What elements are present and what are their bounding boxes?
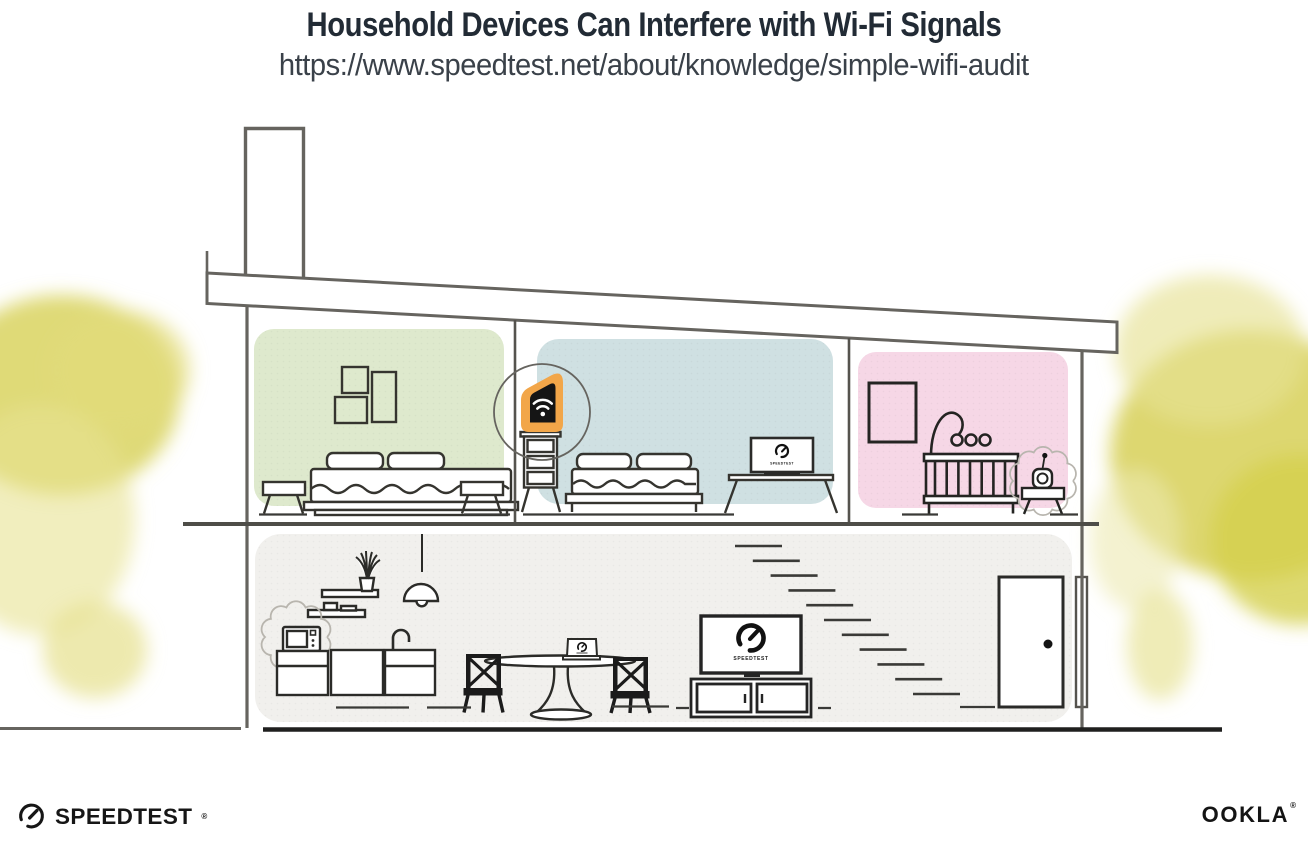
speedtest-tv: SPEEDTEST <box>701 616 801 677</box>
microwave <box>283 627 320 651</box>
ookla-logo: OOKLA® <box>1202 802 1296 828</box>
laptop <box>563 639 600 660</box>
ookla-wordmark: OOKLA <box>1202 802 1289 828</box>
door-knob <box>1044 640 1053 649</box>
speedtest-reg-mark: ® <box>201 812 207 821</box>
monitor-screen-label: SPEEDTEST <box>770 462 794 466</box>
tree-right <box>1090 275 1308 700</box>
tv-screen-label: SPEEDTEST <box>733 656 768 662</box>
speedtest-gauge-icon <box>16 801 47 832</box>
media-console <box>691 679 811 717</box>
speedtest-wordmark: SPEEDTEST <box>55 804 192 830</box>
tree-left <box>0 295 190 698</box>
front-door <box>999 577 1063 707</box>
house-illustration: SPEEDTEST <box>0 0 1308 861</box>
tv-area: SPEEDTEST <box>691 616 811 717</box>
speedtest-monitor: SPEEDTEST <box>751 438 813 476</box>
ookla-reg-mark: ® <box>1290 802 1296 810</box>
chimney <box>246 129 304 279</box>
speedtest-logo: SPEEDTEST® <box>16 801 207 832</box>
